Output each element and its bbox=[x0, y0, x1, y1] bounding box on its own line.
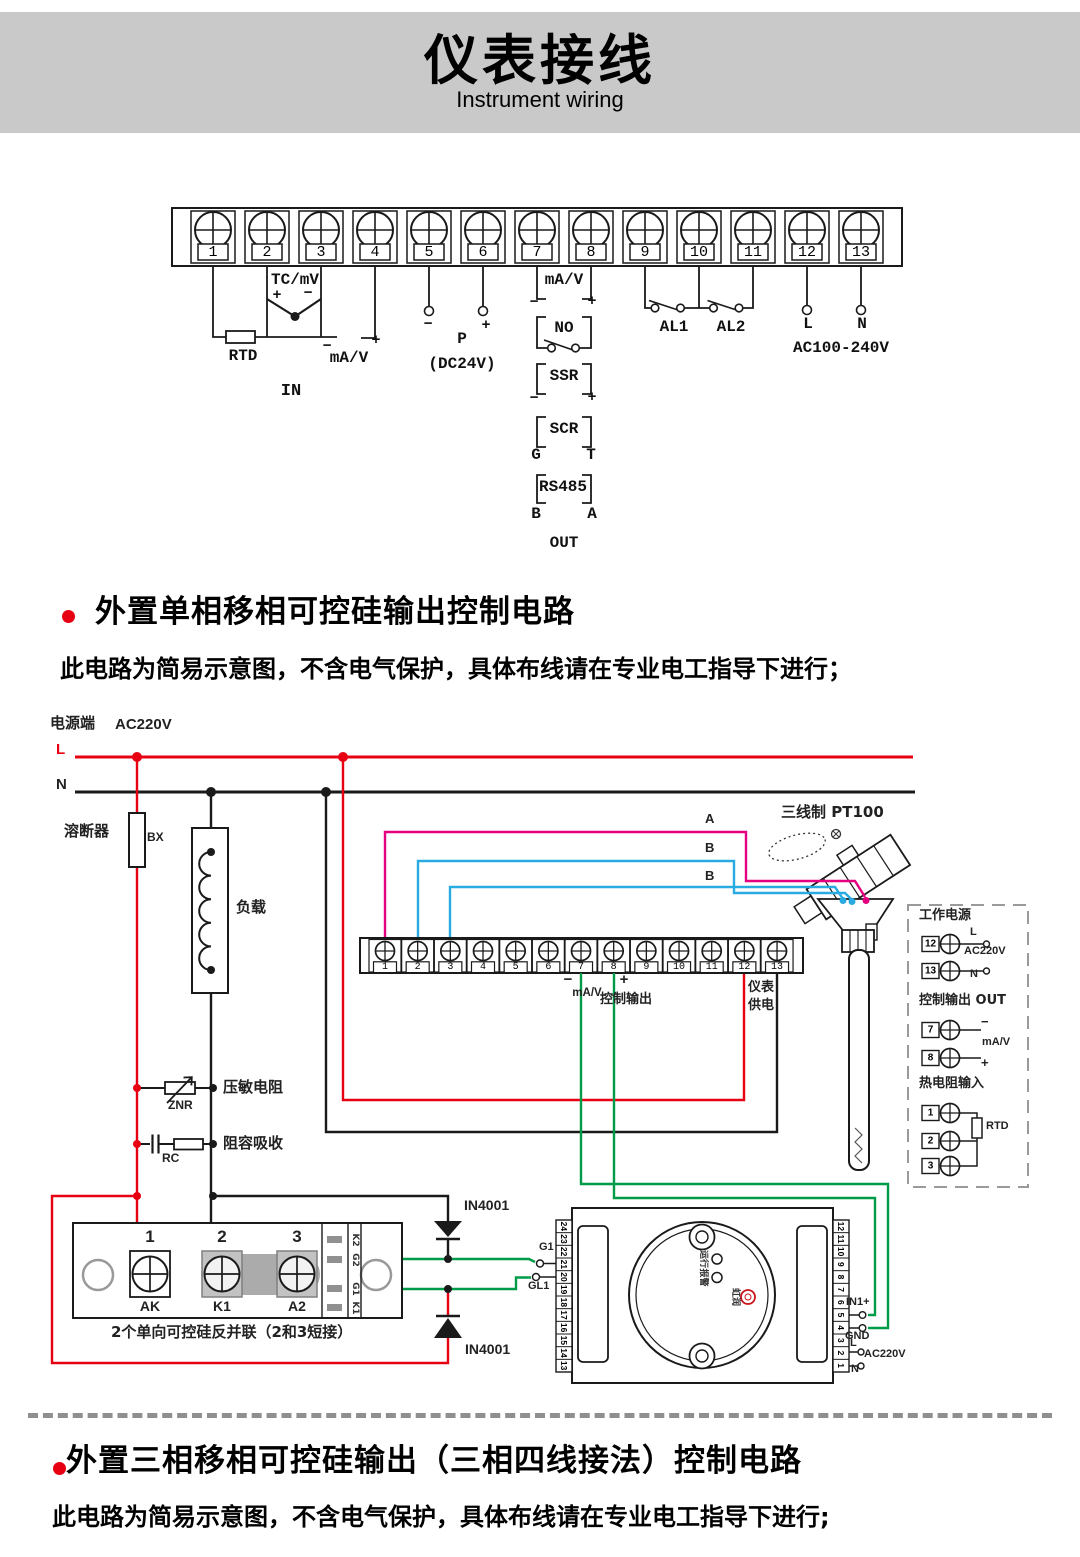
scr-tab-k2: K2 bbox=[350, 1233, 360, 1246]
svg-text:10: 10 bbox=[836, 1247, 846, 1257]
svg-text:7: 7 bbox=[578, 962, 584, 973]
svg-text:7: 7 bbox=[836, 1287, 846, 1292]
svg-text:12: 12 bbox=[925, 939, 937, 950]
svg-text:11: 11 bbox=[706, 962, 718, 973]
fuse-symbol bbox=[129, 813, 145, 867]
svg-text:10: 10 bbox=[673, 962, 685, 973]
svg-text:9: 9 bbox=[643, 962, 649, 973]
load-symbol bbox=[192, 828, 228, 993]
circuit-rails bbox=[75, 757, 915, 792]
svg-text:12: 12 bbox=[738, 962, 750, 973]
rc-snubber-symbol bbox=[137, 1135, 213, 1154]
run-label: 运行 bbox=[698, 1250, 710, 1268]
svg-text:17: 17 bbox=[559, 1310, 569, 1320]
gate-terminals bbox=[533, 1260, 557, 1281]
svg-text:21: 21 bbox=[559, 1260, 569, 1270]
svg-text:14: 14 bbox=[559, 1348, 569, 1358]
svg-text:13: 13 bbox=[925, 966, 937, 977]
svg-text:11: 11 bbox=[836, 1234, 846, 1243]
reference-panel: 121378123 bbox=[908, 905, 1028, 1187]
svg-text:4: 4 bbox=[370, 244, 379, 261]
brand-label: 虹润 bbox=[730, 1288, 742, 1306]
diode-bottom-icon bbox=[434, 1318, 462, 1338]
svg-text:1: 1 bbox=[928, 1108, 934, 1119]
svg-text:7: 7 bbox=[928, 1025, 934, 1036]
svg-text:13: 13 bbox=[771, 962, 783, 973]
svg-text:20: 20 bbox=[559, 1272, 569, 1282]
svg-text:9: 9 bbox=[836, 1262, 846, 1267]
brand-logo-icon bbox=[741, 1290, 755, 1304]
alarm-led-icon bbox=[712, 1273, 722, 1283]
scr-tab-k1: K1 bbox=[350, 1301, 360, 1314]
trigger-module: 运行 报警 虹润 242322212019181716151413 121110… bbox=[556, 1208, 849, 1383]
circuit-strip-terminals: 12345678910111213 bbox=[369, 940, 793, 974]
trigger-right-terminals bbox=[849, 1312, 866, 1369]
svg-text:1: 1 bbox=[836, 1363, 846, 1368]
varistor-symbol bbox=[137, 1077, 213, 1103]
svg-text:5: 5 bbox=[513, 962, 519, 973]
svg-text:23: 23 bbox=[559, 1234, 569, 1244]
svg-text:3: 3 bbox=[316, 244, 325, 261]
svg-text:5: 5 bbox=[424, 244, 433, 261]
svg-text:8: 8 bbox=[836, 1275, 846, 1280]
svg-text:2: 2 bbox=[928, 1136, 934, 1147]
svg-text:19: 19 bbox=[559, 1285, 569, 1295]
svg-text:5: 5 bbox=[836, 1313, 846, 1318]
svg-text:18: 18 bbox=[559, 1298, 569, 1308]
svg-text:15: 15 bbox=[559, 1336, 569, 1346]
svg-text:22: 22 bbox=[559, 1247, 569, 1257]
svg-text:3: 3 bbox=[836, 1338, 846, 1343]
alarm-label: 报警 bbox=[698, 1268, 710, 1286]
svg-text:4: 4 bbox=[836, 1325, 846, 1330]
svg-text:8: 8 bbox=[928, 1053, 934, 1064]
run-led-icon bbox=[712, 1254, 722, 1264]
pt100-sensor bbox=[766, 825, 910, 1170]
wiring-diagram-svg: 12345678910111213 bbox=[0, 0, 1080, 1557]
svg-text:2: 2 bbox=[415, 962, 421, 973]
diode-top-icon bbox=[434, 1221, 462, 1237]
svg-text:13: 13 bbox=[559, 1361, 569, 1371]
svg-text:11: 11 bbox=[744, 244, 762, 261]
svg-text:9: 9 bbox=[640, 244, 649, 261]
scr-tab-g1: G1 bbox=[350, 1282, 360, 1296]
svg-text:8: 8 bbox=[586, 244, 595, 261]
svg-text:4: 4 bbox=[480, 962, 486, 973]
svg-text:6: 6 bbox=[478, 244, 487, 261]
svg-text:13: 13 bbox=[852, 244, 870, 261]
svg-text:10: 10 bbox=[690, 244, 708, 261]
svg-text:24: 24 bbox=[559, 1222, 569, 1232]
svg-text:7: 7 bbox=[532, 244, 541, 261]
svg-text:12: 12 bbox=[836, 1222, 846, 1232]
scr-tab-g2: G2 bbox=[350, 1253, 360, 1267]
scr-module: K2 G2 G1 K1 bbox=[73, 1223, 402, 1318]
svg-text:1: 1 bbox=[208, 244, 217, 261]
svg-text:12: 12 bbox=[798, 244, 816, 261]
terminal-block-wiring bbox=[213, 266, 866, 503]
section-separator bbox=[28, 1413, 1052, 1418]
svg-text:8: 8 bbox=[611, 962, 617, 973]
svg-text:16: 16 bbox=[559, 1323, 569, 1333]
svg-text:1: 1 bbox=[382, 962, 388, 973]
svg-text:2: 2 bbox=[262, 244, 271, 261]
svg-text:2: 2 bbox=[836, 1351, 846, 1356]
sensor-wires bbox=[385, 832, 870, 938]
svg-text:6: 6 bbox=[545, 962, 551, 973]
svg-text:3: 3 bbox=[447, 962, 453, 973]
svg-text:6: 6 bbox=[836, 1300, 846, 1305]
svg-text:3: 3 bbox=[928, 1161, 934, 1172]
